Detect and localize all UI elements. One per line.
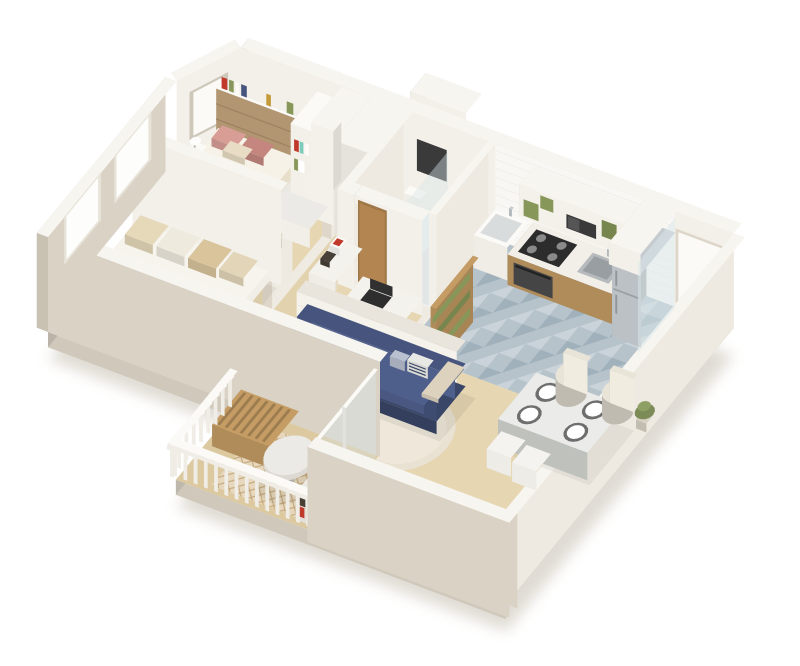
floor-plan-canvas: [0, 0, 800, 666]
floor-plan-render: [0, 0, 800, 666]
